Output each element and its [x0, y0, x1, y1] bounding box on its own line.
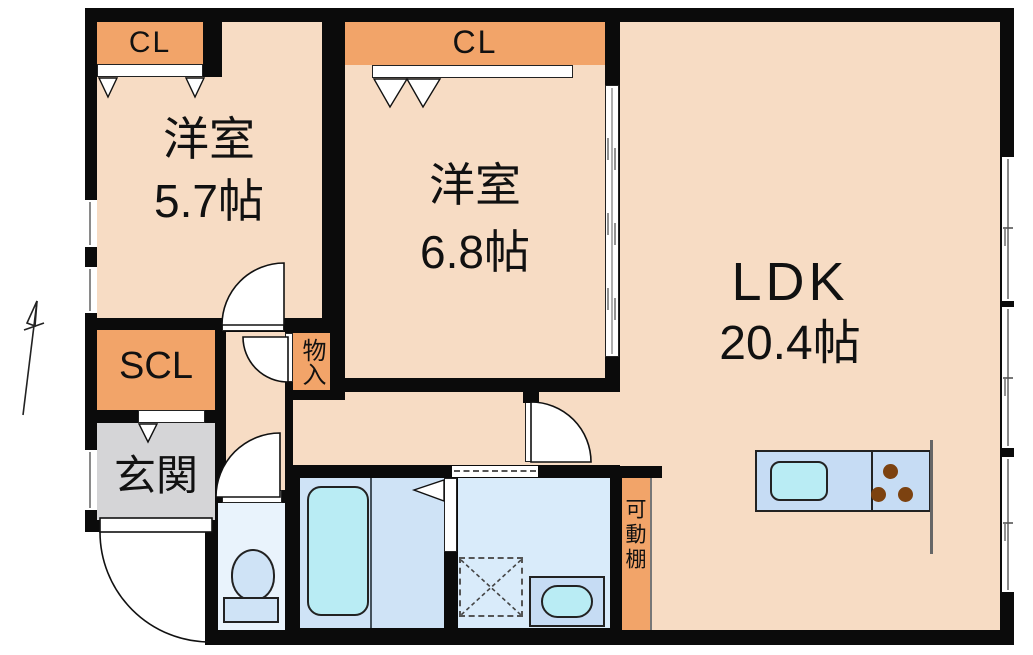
hallway: [226, 332, 285, 490]
room1-door-opening: [222, 318, 284, 331]
bathtub: [307, 486, 369, 616]
scl-door-strip: [138, 410, 205, 423]
north-arrow-icon: [23, 301, 44, 415]
ldk-label: LDK 20.4帖: [650, 250, 930, 372]
closet-wall-stub: [203, 22, 222, 77]
window-left-2: [85, 267, 97, 313]
hallway: [345, 392, 620, 465]
scl-label: SCL: [97, 345, 215, 388]
toilet-bowl: [231, 549, 275, 601]
toilet-door-opening: [222, 490, 282, 503]
hall-ldk-door-leaf: [525, 400, 537, 462]
hall-ldk-wall-stub: [523, 390, 539, 403]
kitchen-edge-line: [930, 440, 933, 554]
room2-name-label: 洋室: [350, 152, 600, 219]
bath-deck-line: [370, 478, 372, 628]
washroom-right-wall: [610, 466, 622, 630]
closet2-door-strip: [372, 65, 573, 78]
window-entrance: [85, 450, 97, 510]
closet2-label: CL: [345, 24, 605, 61]
wash-basin-bowl: [541, 585, 593, 618]
closet1-door-strip: [97, 64, 203, 77]
window-right-3: [1002, 457, 1014, 592]
hallway: [293, 400, 345, 465]
stove-burner-2: [871, 487, 886, 502]
window-right-1: [1002, 157, 1014, 301]
washing-machine-space: [459, 557, 523, 617]
storage-label: 物入: [299, 338, 323, 386]
stove-burner-3: [898, 487, 913, 502]
room1-size-label: 5.7帖: [95, 170, 323, 232]
exterior-area: [85, 532, 205, 645]
stove-burner-1: [883, 464, 898, 479]
room2-ldk-sliding-partition: [605, 85, 619, 357]
room2-size-label: 6.8帖: [350, 219, 600, 286]
washroom-wall-stub: [605, 466, 662, 478]
room2-label: 洋室 6.8帖: [350, 152, 600, 285]
movable-shelf-label: 可動棚: [624, 498, 645, 573]
window-right-2: [1002, 307, 1014, 448]
closet1-label: CL: [97, 26, 203, 60]
movable-shelf-edge: [650, 478, 652, 630]
kitchen-sink: [770, 461, 828, 501]
washroom-sliding-door: [452, 466, 538, 477]
ldk-name-label: LDK: [650, 250, 930, 315]
bath-wash-wall: [444, 552, 457, 628]
kitchen-counter-divider: [871, 452, 873, 510]
bathroom-door-strip: [444, 478, 457, 552]
storage-door-opening: [285, 333, 293, 382]
entrance-label: 玄関: [97, 442, 215, 503]
room1-label: 洋室 5.7帖: [95, 108, 323, 232]
toilet-tank: [223, 597, 279, 623]
sliding-door-dash: [454, 470, 536, 472]
room1-name-label: 洋室: [95, 108, 323, 170]
ldk-size-label: 20.4帖: [650, 315, 930, 373]
floorplan-canvas: 洋室 5.7帖 洋室 6.8帖 LDK 20.4帖 CL CL SCL 玄関 物…: [0, 0, 1033, 655]
